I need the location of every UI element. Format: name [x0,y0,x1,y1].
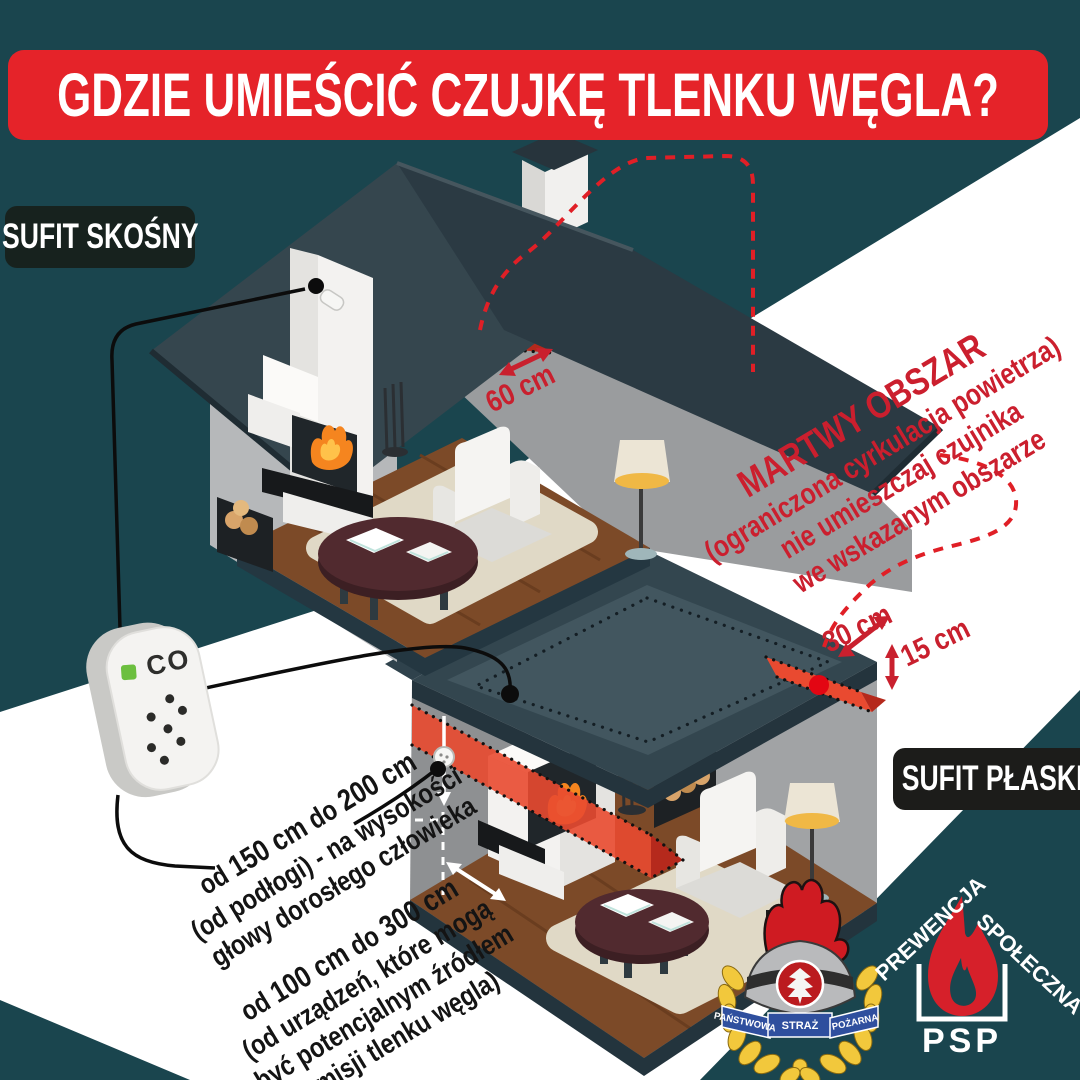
infographic-canvas: CO [0,0,1080,1080]
lamp-glow [785,813,839,829]
title-banner: GDZIE UMIEŚCIĆ CZUJKĘ TLENKU WĘGLA? [8,50,1048,140]
callout-dot [308,278,324,294]
badge-sloped-label: SUFIT SKOŚNY [2,217,199,257]
badge-sloped-ceiling: SUFIT SKOŚNY [5,206,195,268]
logo-name-text: PSP [922,1022,1002,1060]
scene: CO [0,0,1080,1080]
badge-flat-label: SUFIT PŁASKI [902,759,1080,799]
ribbon-text-center: STRAŻ [782,1019,819,1032]
wrong-detector-dot [809,675,829,695]
callout-dot [501,685,519,703]
led-indicator [121,664,137,680]
callout-dot [430,761,446,777]
badge-flat-ceiling: SUFIT PŁASKI [893,748,1080,810]
page-title: GDZIE UMIEŚCIĆ CZUJKĘ TLENKU WĘGLA? [57,60,999,130]
